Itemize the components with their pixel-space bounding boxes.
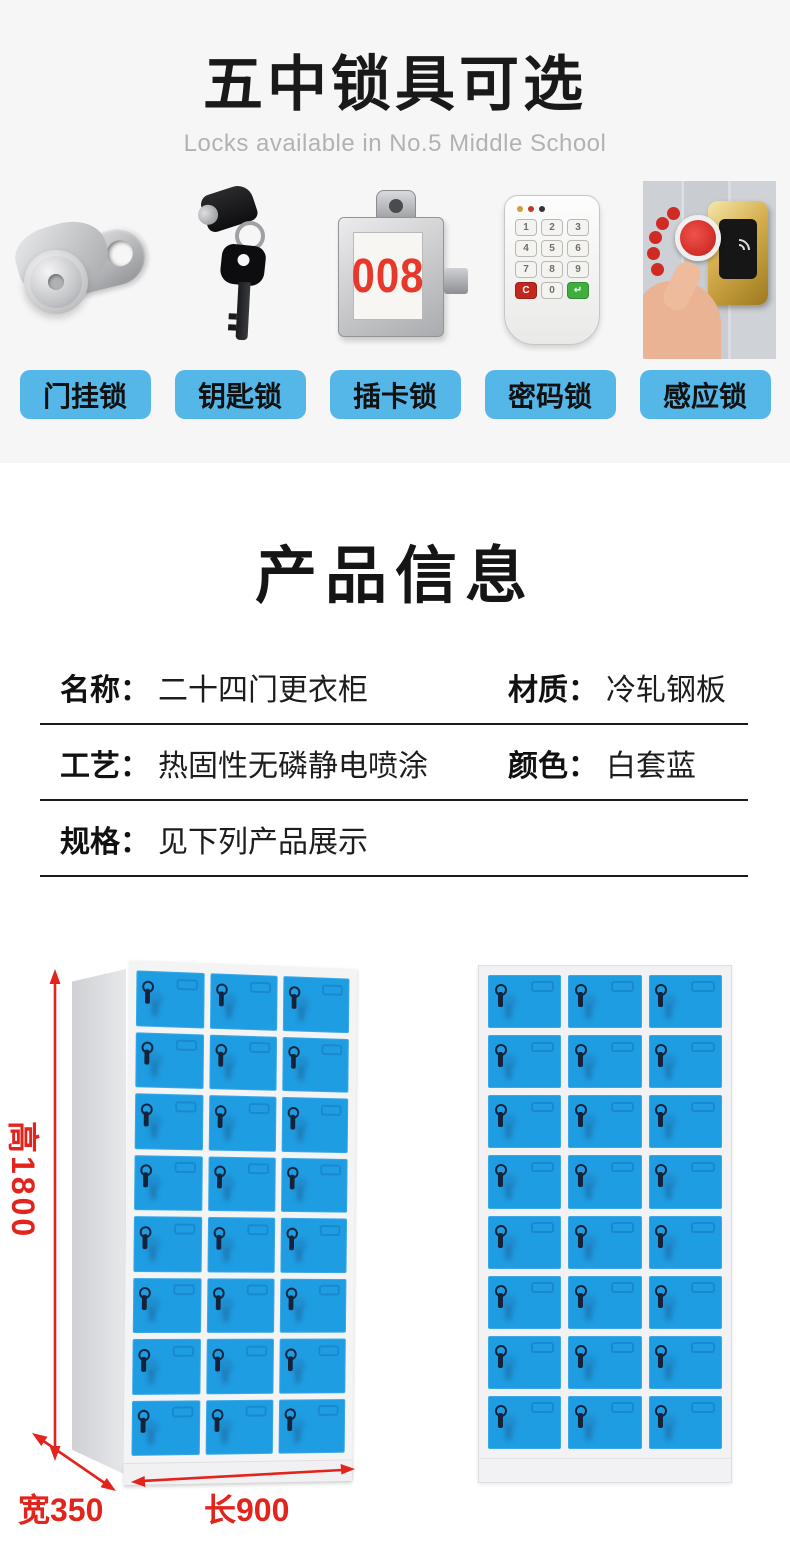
label-holder xyxy=(322,984,343,996)
indicator-led xyxy=(517,206,523,212)
induction-lock-icon xyxy=(643,181,776,359)
keypad-key: 8 xyxy=(541,261,563,278)
label-holder xyxy=(174,1162,196,1173)
lock-images-row: 008 123456789C0↵ xyxy=(0,180,790,360)
key-icon xyxy=(498,1233,503,1248)
label-holder xyxy=(246,1285,268,1296)
key-lock-icon xyxy=(183,189,293,351)
card-lock-latch xyxy=(444,268,468,294)
label-holder xyxy=(611,1402,634,1413)
key-icon xyxy=(498,1293,503,1308)
key-icon xyxy=(498,1353,503,1368)
label-holder xyxy=(691,1222,714,1233)
locker-door xyxy=(568,1155,641,1208)
label-holder xyxy=(691,981,714,992)
label-holder xyxy=(248,1163,270,1174)
locker-door xyxy=(282,1036,349,1092)
card-lock-number-panel: 008 xyxy=(353,232,423,320)
locker-door xyxy=(568,1336,641,1389)
locker-door xyxy=(568,1276,641,1329)
reader-screen xyxy=(719,219,757,279)
key-icon xyxy=(578,1293,583,1308)
keypad-key: 2 xyxy=(541,219,563,236)
locker-door xyxy=(488,1155,561,1208)
locker-door xyxy=(568,975,641,1028)
keypad-keys: 123456789C0↵ xyxy=(515,219,589,299)
key-icon xyxy=(219,991,224,1006)
label-holder xyxy=(611,1042,634,1053)
key-icon xyxy=(658,1353,663,1368)
spec-table: 名称： 二十四门更衣柜 材质： 冷轧钢板 工艺： 热固性无磷静电喷涂 颜色： 白… xyxy=(40,649,748,877)
rfid-fob xyxy=(675,215,721,261)
key-icon xyxy=(578,992,583,1007)
locker-door xyxy=(488,975,561,1028)
key-icon xyxy=(289,1235,294,1250)
key-icon xyxy=(290,1115,295,1130)
lock-labels-row: 门挂锁 钥匙锁 插卡锁 密码锁 感应锁 xyxy=(0,370,790,419)
key-icon xyxy=(216,1295,221,1310)
label-holder xyxy=(611,1282,634,1293)
locker-door xyxy=(568,1035,641,1088)
label-holder xyxy=(249,1042,271,1054)
cabinet-perspective-view xyxy=(72,961,364,1485)
label-holder xyxy=(317,1405,338,1416)
key-lock-image xyxy=(172,180,305,360)
label-holder xyxy=(531,1282,554,1293)
label-holder xyxy=(318,1345,339,1356)
induction-lock-image xyxy=(643,180,776,360)
spec-row: 工艺： 热固性无磷静电喷涂 颜色： 白套蓝 xyxy=(40,725,748,801)
locker-door xyxy=(488,1336,561,1389)
height-dimension-label: 高1800 xyxy=(2,1121,48,1239)
keypad-key: 3 xyxy=(567,219,589,236)
locker-door xyxy=(283,976,350,1033)
card-lock-icon: 008 xyxy=(330,190,460,350)
key-icon xyxy=(658,1233,663,1248)
label-holder xyxy=(691,1342,714,1353)
length-dimension-label: 长900 xyxy=(204,1485,289,1531)
key-icon xyxy=(287,1416,292,1431)
locker-door xyxy=(209,1095,277,1151)
locker-door xyxy=(133,1278,202,1333)
label-holder xyxy=(691,1102,714,1113)
key-icon xyxy=(145,988,150,1003)
locker-door xyxy=(649,1336,722,1389)
key-icon xyxy=(658,1112,663,1127)
key-icon xyxy=(218,1052,223,1067)
locker-door xyxy=(649,1155,722,1208)
keypad-key: 9 xyxy=(567,261,589,278)
key-stem xyxy=(235,282,250,341)
spec-label: 颜色： xyxy=(508,741,598,785)
rfid-signal-icon xyxy=(728,239,748,259)
locker-door xyxy=(280,1278,347,1333)
wristband-bead xyxy=(649,231,662,244)
label-holder xyxy=(611,1342,634,1353)
cam-lock-icon xyxy=(16,210,146,330)
key-icon xyxy=(658,1293,663,1308)
lock-type-badge-password[interactable]: 密码锁 xyxy=(485,370,616,419)
locker-door xyxy=(649,1035,722,1088)
key-icon xyxy=(143,1173,148,1188)
cam-lock-image xyxy=(15,180,148,360)
label-holder xyxy=(249,981,271,993)
locker-door xyxy=(136,970,205,1028)
keypad-key: 4 xyxy=(515,240,537,257)
label-holder xyxy=(175,1101,197,1113)
key-icon xyxy=(578,1233,583,1248)
label-holder xyxy=(319,1285,340,1296)
locker-door xyxy=(206,1399,274,1455)
keypad-lock-image: 123456789C0↵ xyxy=(486,180,619,360)
key-icon xyxy=(291,1054,296,1069)
label-holder xyxy=(531,1222,554,1233)
key-icon xyxy=(498,1172,503,1187)
locker-door xyxy=(279,1399,346,1454)
key-icon xyxy=(141,1418,146,1433)
locker-door xyxy=(568,1396,641,1449)
label-holder xyxy=(611,981,634,992)
width-dimension-arrow xyxy=(26,1431,122,1493)
locker-door xyxy=(132,1339,201,1395)
locker-door xyxy=(488,1396,561,1449)
locks-section-title: 五中锁具可选 xyxy=(0,52,790,118)
label-holder xyxy=(172,1407,194,1418)
locker-door xyxy=(488,1035,561,1088)
locker-door xyxy=(209,1034,277,1091)
label-holder xyxy=(321,1044,342,1055)
locker-door xyxy=(208,1156,276,1212)
key-icon xyxy=(658,1052,663,1067)
locker-door xyxy=(210,973,278,1030)
label-holder xyxy=(247,1224,269,1235)
cabinet-base xyxy=(479,1458,731,1482)
label-holder xyxy=(611,1102,634,1113)
spec-value: 白套蓝 xyxy=(606,741,696,785)
locker-door xyxy=(131,1400,200,1456)
label-holder xyxy=(531,1402,554,1413)
label-holder xyxy=(691,1402,714,1413)
locker-door xyxy=(488,1095,561,1148)
locker-door-grid xyxy=(479,966,731,1458)
locker-door xyxy=(281,1157,348,1212)
locker-door xyxy=(649,1216,722,1269)
locker-door xyxy=(134,1155,203,1211)
spec-label: 规格： xyxy=(60,817,150,861)
key-icon xyxy=(498,1413,503,1428)
key-icon xyxy=(578,1112,583,1127)
key-icon xyxy=(144,1111,149,1126)
label-holder xyxy=(531,981,554,992)
keypad-key: 1 xyxy=(515,219,537,236)
indicator-led xyxy=(539,206,545,212)
label-holder xyxy=(319,1225,340,1236)
wristband-bead xyxy=(647,247,660,260)
width-dimension-label: 宽350 xyxy=(18,1485,103,1531)
keypad-key: 0 xyxy=(541,282,563,299)
key-icon xyxy=(215,1356,220,1371)
length-dimension-arrow xyxy=(128,1463,358,1487)
label-holder xyxy=(173,1284,195,1295)
label-holder xyxy=(691,1042,714,1053)
spec-label: 名称： xyxy=(60,665,150,709)
label-holder xyxy=(691,1162,714,1173)
key-icon xyxy=(216,1235,221,1250)
spec-label: 工艺： xyxy=(60,741,150,785)
key-icon xyxy=(292,994,297,1009)
lock-type-badge-padlock[interactable]: 门挂锁 xyxy=(20,370,151,419)
label-holder xyxy=(246,1345,268,1356)
label-holder xyxy=(611,1222,634,1233)
spec-value: 冷轧钢板 xyxy=(606,665,726,709)
key-icon xyxy=(578,1353,583,1368)
spec-process: 工艺： 热固性无磷静电喷涂 xyxy=(60,741,508,785)
locks-section-subtitle: Locks available in No.5 Middle School xyxy=(0,130,790,158)
spec-size: 规格： 见下列产品展示 xyxy=(60,817,508,861)
keypad-key: 5 xyxy=(541,240,563,257)
wristband-bead xyxy=(656,217,669,230)
spec-value: 热固性无磷静电喷涂 xyxy=(158,741,428,785)
key-icon xyxy=(289,1296,294,1311)
locker-door xyxy=(207,1217,275,1272)
locker-door xyxy=(488,1216,561,1269)
key-head xyxy=(219,243,267,287)
label-holder xyxy=(531,1042,554,1053)
label-holder xyxy=(174,1223,196,1234)
label-holder xyxy=(531,1342,554,1353)
spec-value: 二十四门更衣柜 xyxy=(158,665,368,709)
spec-name: 名称： 二十四门更衣柜 xyxy=(60,665,508,709)
label-holder xyxy=(172,1345,194,1356)
cabinet-front-view xyxy=(478,965,732,1483)
locker-door xyxy=(649,1095,722,1148)
cabinet-images: 高1800 宽350 长900 xyxy=(0,939,790,1567)
key-icon xyxy=(578,1413,583,1428)
card-lock-body: 008 xyxy=(338,217,444,337)
locker-door-grid xyxy=(124,961,358,1463)
locker-door xyxy=(135,1093,204,1150)
locker-door xyxy=(280,1218,347,1273)
locker-door xyxy=(279,1339,346,1394)
key-icon xyxy=(658,1413,663,1428)
cam-lock-face xyxy=(24,250,88,314)
label-holder xyxy=(176,979,198,991)
key-icon xyxy=(288,1356,293,1371)
key-icon xyxy=(578,1172,583,1187)
spec-color: 颜色： 白套蓝 xyxy=(508,741,748,785)
wristband-bead xyxy=(651,263,664,276)
keypad-key: C xyxy=(515,282,537,299)
label-holder xyxy=(320,1165,341,1176)
label-holder xyxy=(175,1040,197,1052)
key-icon xyxy=(218,1113,223,1128)
key-icon xyxy=(658,1172,663,1187)
label-holder xyxy=(320,1104,341,1115)
lock-type-badge-key[interactable]: 钥匙锁 xyxy=(175,370,306,419)
keypad-key: ↵ xyxy=(567,282,589,299)
locker-door xyxy=(568,1095,641,1148)
product-info-section: 产品信息 名称： 二十四门更衣柜 材质： 冷轧钢板 工艺： 热固性无磷静电喷涂 xyxy=(0,463,790,1567)
product-detail-page: 五中锁具可选 Locks available in No.5 Middle Sc… xyxy=(0,0,790,1567)
key-icon xyxy=(143,1234,148,1249)
locker-door xyxy=(649,1396,722,1449)
key-icon xyxy=(578,1052,583,1067)
spec-row: 规格： 见下列产品展示 xyxy=(40,801,748,877)
key-icon xyxy=(217,1174,222,1189)
label-holder xyxy=(245,1406,267,1417)
card-lock-number: 008 xyxy=(351,248,424,303)
cabinet-front-face xyxy=(123,961,357,1485)
label-holder xyxy=(691,1282,714,1293)
key-icon xyxy=(142,1295,147,1310)
locker-door xyxy=(488,1276,561,1329)
indicator-led xyxy=(528,206,534,212)
label-holder xyxy=(611,1162,634,1173)
lock-type-badge-induction[interactable]: 感应锁 xyxy=(640,370,771,419)
keypad-lock-icon: 123456789C0↵ xyxy=(504,195,600,345)
cabinet-side-panel xyxy=(72,969,126,1475)
wristband-bead xyxy=(667,207,680,220)
locker-door xyxy=(206,1339,274,1394)
label-holder xyxy=(531,1102,554,1113)
locker-door xyxy=(568,1216,641,1269)
label-holder xyxy=(531,1162,554,1173)
locker-door xyxy=(133,1216,202,1272)
keypad-key: 6 xyxy=(567,240,589,257)
spec-row: 名称： 二十四门更衣柜 材质： 冷轧钢板 xyxy=(40,649,748,725)
spec-value: 见下列产品展示 xyxy=(158,817,368,861)
locker-door xyxy=(649,1276,722,1329)
locker-door xyxy=(282,1097,349,1153)
height-dimension-arrow xyxy=(47,969,63,1461)
locker-door xyxy=(649,975,722,1028)
keypad-key: 7 xyxy=(515,261,537,278)
spec-label: 材质： xyxy=(508,665,598,709)
spec-material: 材质： 冷轧钢板 xyxy=(508,665,748,709)
key-icon xyxy=(215,1417,220,1432)
card-lock-image: 008 xyxy=(329,180,462,360)
key-icon xyxy=(144,1050,149,1065)
key-icon xyxy=(498,1112,503,1127)
label-holder xyxy=(248,1103,270,1114)
key-icon xyxy=(498,992,503,1007)
product-info-title: 产品信息 xyxy=(0,463,790,615)
key-icon xyxy=(141,1357,146,1372)
keypad-indicator-lights xyxy=(517,206,589,212)
locks-section: 五中锁具可选 Locks available in No.5 Middle Sc… xyxy=(0,0,790,463)
locker-door xyxy=(207,1278,275,1333)
induction-lock-reader xyxy=(708,201,768,305)
locker-door xyxy=(135,1032,204,1089)
lock-type-badge-card[interactable]: 插卡锁 xyxy=(330,370,461,419)
key-icon xyxy=(658,992,663,1007)
key-icon xyxy=(290,1175,295,1190)
key-icon xyxy=(498,1052,503,1067)
